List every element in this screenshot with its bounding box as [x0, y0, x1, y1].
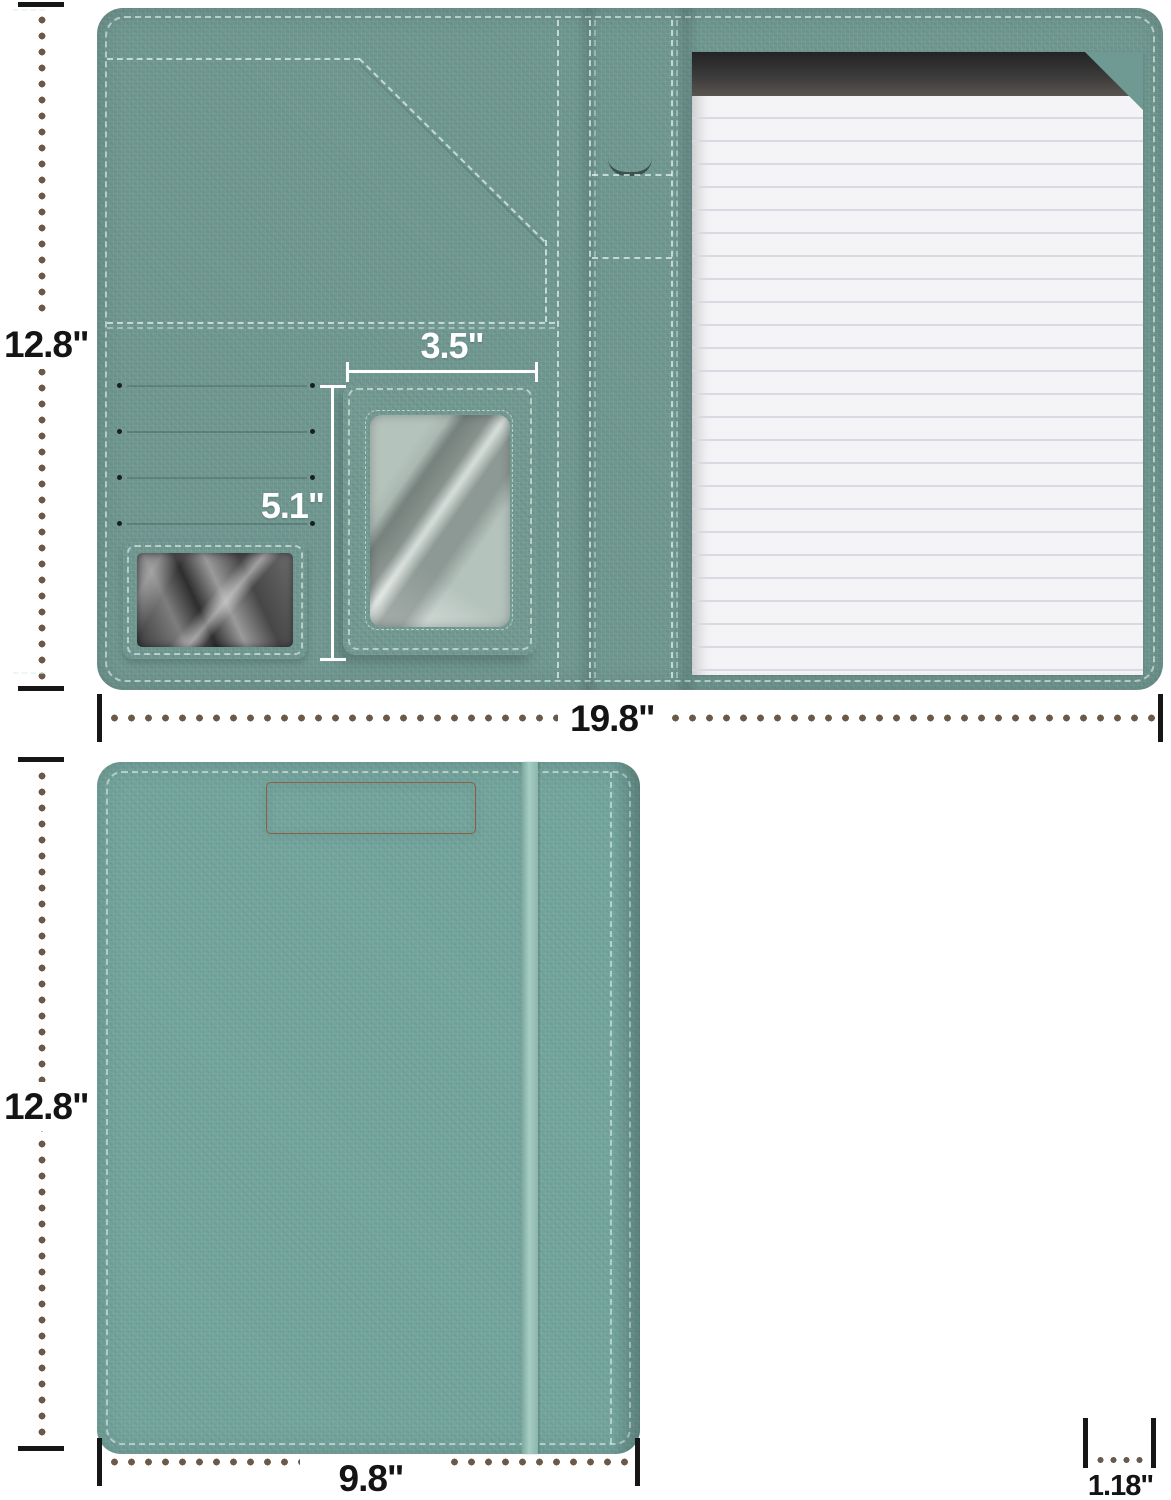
dim-tick — [635, 1438, 640, 1486]
pad-binding — [692, 52, 1143, 96]
pen-loop-bottom-seam — [592, 257, 672, 259]
gusset-seam-left-2 — [594, 20, 596, 678]
spine-fold-shade — [612, 762, 640, 1454]
dim-tick — [18, 1446, 64, 1451]
clipboard-front-view — [97, 762, 640, 1454]
dim-tick-white — [535, 362, 538, 382]
dim-open-width-label: 19.8" — [558, 694, 667, 743]
spine-stitch-bottom — [13, 672, 45, 674]
dim-tick — [1083, 1418, 1088, 1468]
pen-loop-top-seam — [592, 174, 672, 176]
gusset-seam-right — [671, 20, 673, 678]
dim-tick — [18, 686, 64, 691]
dim-open-height-label: 12.8" — [0, 320, 93, 369]
dim-id-window-width-label: 3.5" — [392, 328, 512, 364]
document-pocket-diagonal-seam — [359, 58, 546, 242]
id-window-picture — [370, 415, 510, 627]
letter-pad — [692, 52, 1143, 675]
fold-crease-left — [575, 8, 601, 690]
dim-spine-thickness-label: 1.18" — [1070, 1468, 1171, 1500]
id-window-pocket — [343, 383, 537, 655]
dim-closed-height-label: 12.8" — [0, 1082, 93, 1131]
gusset-seam-left — [589, 20, 591, 678]
document-pocket-side-seam — [545, 240, 547, 322]
left-panel-edge-seam — [557, 20, 559, 678]
dim-tick — [97, 1438, 102, 1486]
dim-closed-width-label: 9.8" — [300, 1456, 442, 1500]
spine-stitch-top — [13, 9, 45, 11]
photo-window-picture — [137, 553, 293, 647]
dim-tick — [1158, 694, 1163, 742]
dim-line-id-width — [347, 370, 537, 373]
document-pocket-seam — [107, 58, 360, 60]
open-portfolio-view — [97, 8, 1163, 690]
clip-plate — [266, 782, 476, 834]
clipboard-clip — [260, 768, 482, 834]
dim-tick — [18, 757, 64, 762]
edge-stitching — [106, 771, 631, 1445]
pad-lined-paper — [692, 96, 1143, 675]
dim-tick — [97, 694, 102, 742]
dim-id-window-height-label: 5.1" — [248, 488, 324, 524]
dim-dotted-line-spine-thickness — [1094, 1456, 1147, 1464]
dim-tick-white — [320, 658, 346, 661]
dim-line-id-height — [331, 386, 334, 660]
panel-mid-seam — [107, 322, 555, 324]
gusset-seam-right-2 — [676, 20, 678, 678]
dim-tick — [18, 2, 64, 7]
photo-window — [123, 541, 307, 659]
elastic-band — [522, 762, 538, 1454]
dim-tick — [1151, 1418, 1156, 1468]
document-pocket-shadow — [359, 63, 546, 247]
product-dimension-image: 12.8" 19.8" 3.5" 5.1" 12.8" 9.8" — [0, 0, 1171, 1500]
